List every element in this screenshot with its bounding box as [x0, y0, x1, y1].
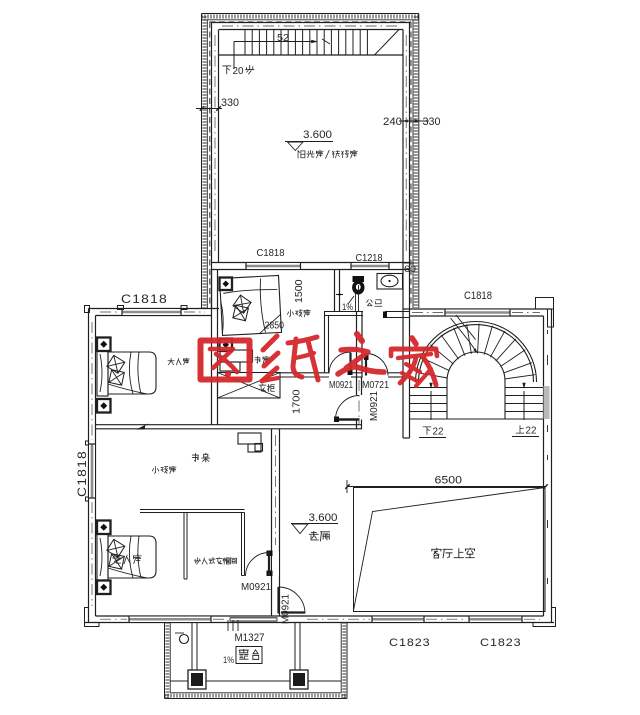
svg-text:C1823: C1823 [389, 637, 431, 649]
svg-text:3.600: 3.600 [309, 512, 338, 524]
svg-text:M0921: M0921 [369, 391, 380, 421]
svg-text:C1818: C1818 [464, 290, 492, 302]
svg-text:M0921: M0921 [281, 594, 292, 624]
svg-text:52: 52 [277, 33, 289, 44]
svg-text:330: 330 [221, 97, 239, 109]
svg-text:240: 240 [383, 116, 402, 128]
svg-text:22: 22 [433, 426, 444, 438]
svg-text:C1218: C1218 [356, 253, 383, 264]
svg-text:M0921: M0921 [241, 582, 271, 593]
svg-text:M0921: M0921 [329, 380, 353, 391]
svg-text:1%: 1% [223, 655, 234, 666]
svg-text:C1823: C1823 [480, 637, 522, 649]
svg-text:1500: 1500 [293, 279, 305, 303]
svg-text:1700: 1700 [291, 389, 303, 414]
svg-text:C1818: C1818 [121, 294, 168, 306]
svg-text:60: 60 [404, 264, 416, 275]
svg-text:3.600: 3.600 [303, 129, 332, 141]
svg-text:330: 330 [423, 116, 441, 128]
svg-text:6500: 6500 [435, 475, 463, 487]
svg-text:C1818: C1818 [257, 248, 285, 259]
svg-text:C1818: C1818 [77, 450, 89, 497]
svg-text:M0721: M0721 [362, 380, 389, 391]
svg-text:22: 22 [526, 425, 537, 437]
svg-text:M1327: M1327 [235, 632, 265, 644]
svg-text:20: 20 [233, 66, 244, 77]
svg-text:1%: 1% [342, 302, 353, 313]
